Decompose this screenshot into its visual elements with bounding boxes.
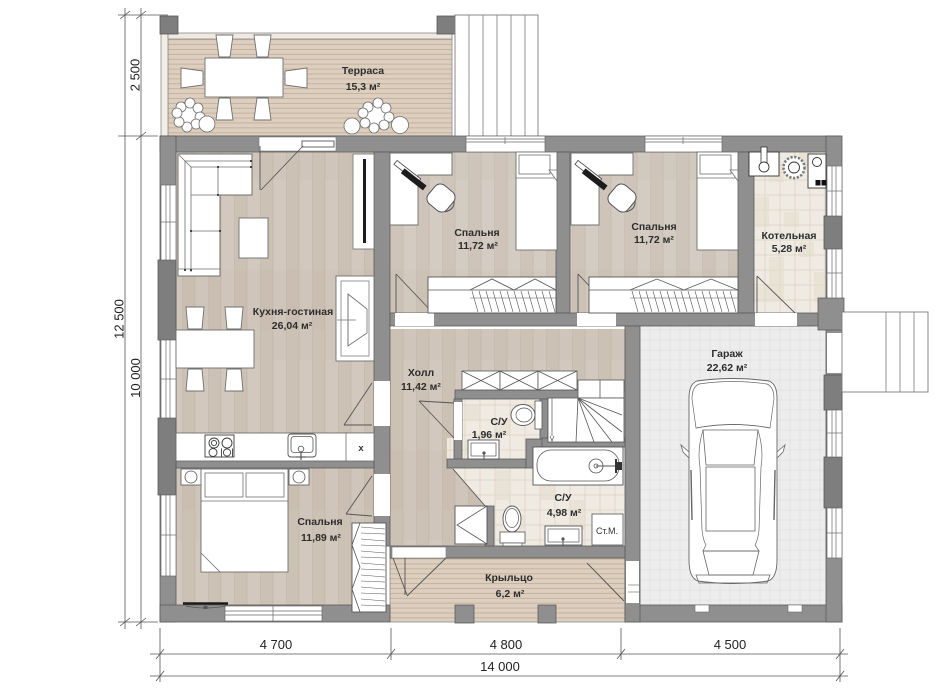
svg-text:15,3 м²: 15,3 м² bbox=[346, 81, 381, 93]
svg-text:4 500: 4 500 bbox=[714, 637, 747, 652]
svg-text:11,72 м²: 11,72 м² bbox=[634, 234, 674, 246]
svg-text:С/У: С/У bbox=[554, 492, 572, 504]
svg-text:26,04 м²: 26,04 м² bbox=[272, 320, 313, 332]
svg-text:11,42 м²: 11,42 м² bbox=[401, 381, 441, 393]
svg-text:Спальня: Спальня bbox=[631, 221, 676, 233]
svg-text:12 500: 12 500 bbox=[112, 299, 127, 339]
svg-text:10 000: 10 000 bbox=[128, 358, 143, 398]
svg-text:6,2 м²: 6,2 м² bbox=[496, 588, 525, 600]
svg-text:11,72 м²: 11,72 м² bbox=[458, 240, 498, 252]
svg-text:Спальня: Спальня bbox=[454, 227, 499, 239]
svg-text:4 800: 4 800 bbox=[490, 637, 523, 652]
svg-text:С/У: С/У bbox=[490, 416, 508, 428]
svg-text:11,89 м²: 11,89 м² bbox=[301, 532, 341, 544]
svg-text:Крыльцо: Крыльцо bbox=[485, 572, 533, 584]
svg-text:Терраса: Терраса bbox=[342, 65, 384, 77]
svg-text:5,28 м²: 5,28 м² bbox=[772, 243, 807, 255]
svg-text:22,62 м²: 22,62 м² bbox=[707, 362, 748, 374]
svg-text:14 000: 14 000 bbox=[480, 659, 520, 674]
svg-text:4,98 м²: 4,98 м² bbox=[547, 507, 582, 519]
svg-text:2 500: 2 500 bbox=[128, 59, 143, 92]
svg-text:Спальня: Спальня bbox=[297, 516, 342, 528]
svg-text:1,96 м²: 1,96 м² bbox=[472, 429, 507, 441]
svg-text:Котельная: Котельная bbox=[762, 230, 817, 242]
svg-text:х: х bbox=[358, 443, 364, 454]
svg-text:Гараж: Гараж bbox=[711, 348, 743, 360]
svg-text:Ст.М.: Ст.М. bbox=[596, 526, 618, 536]
svg-text:Кухня-гостиная: Кухня-гостиная bbox=[253, 306, 333, 318]
svg-text:4 700: 4 700 bbox=[260, 637, 293, 652]
svg-text:Холл: Холл bbox=[408, 367, 434, 379]
